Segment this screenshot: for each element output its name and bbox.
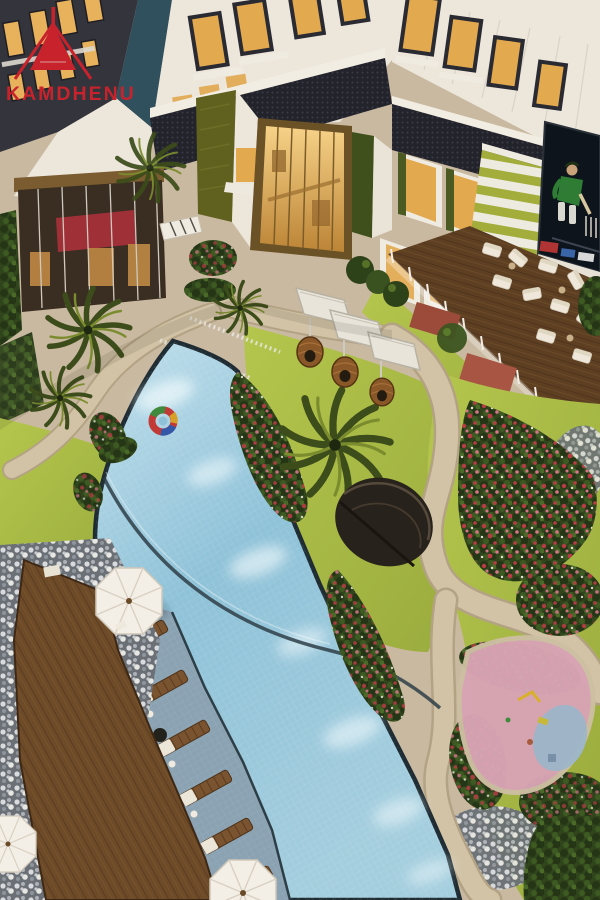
pool-float-ring xyxy=(152,410,174,432)
balcony-door-lit xyxy=(236,148,256,182)
render-canvas: KAMDHENU xyxy=(0,0,600,900)
green-wall-panel-right xyxy=(352,132,374,238)
brand-name: KAMDHENU xyxy=(6,83,136,105)
led-screen-cricket xyxy=(538,122,600,272)
property-aerial-render: KAMDHENU xyxy=(0,0,600,900)
